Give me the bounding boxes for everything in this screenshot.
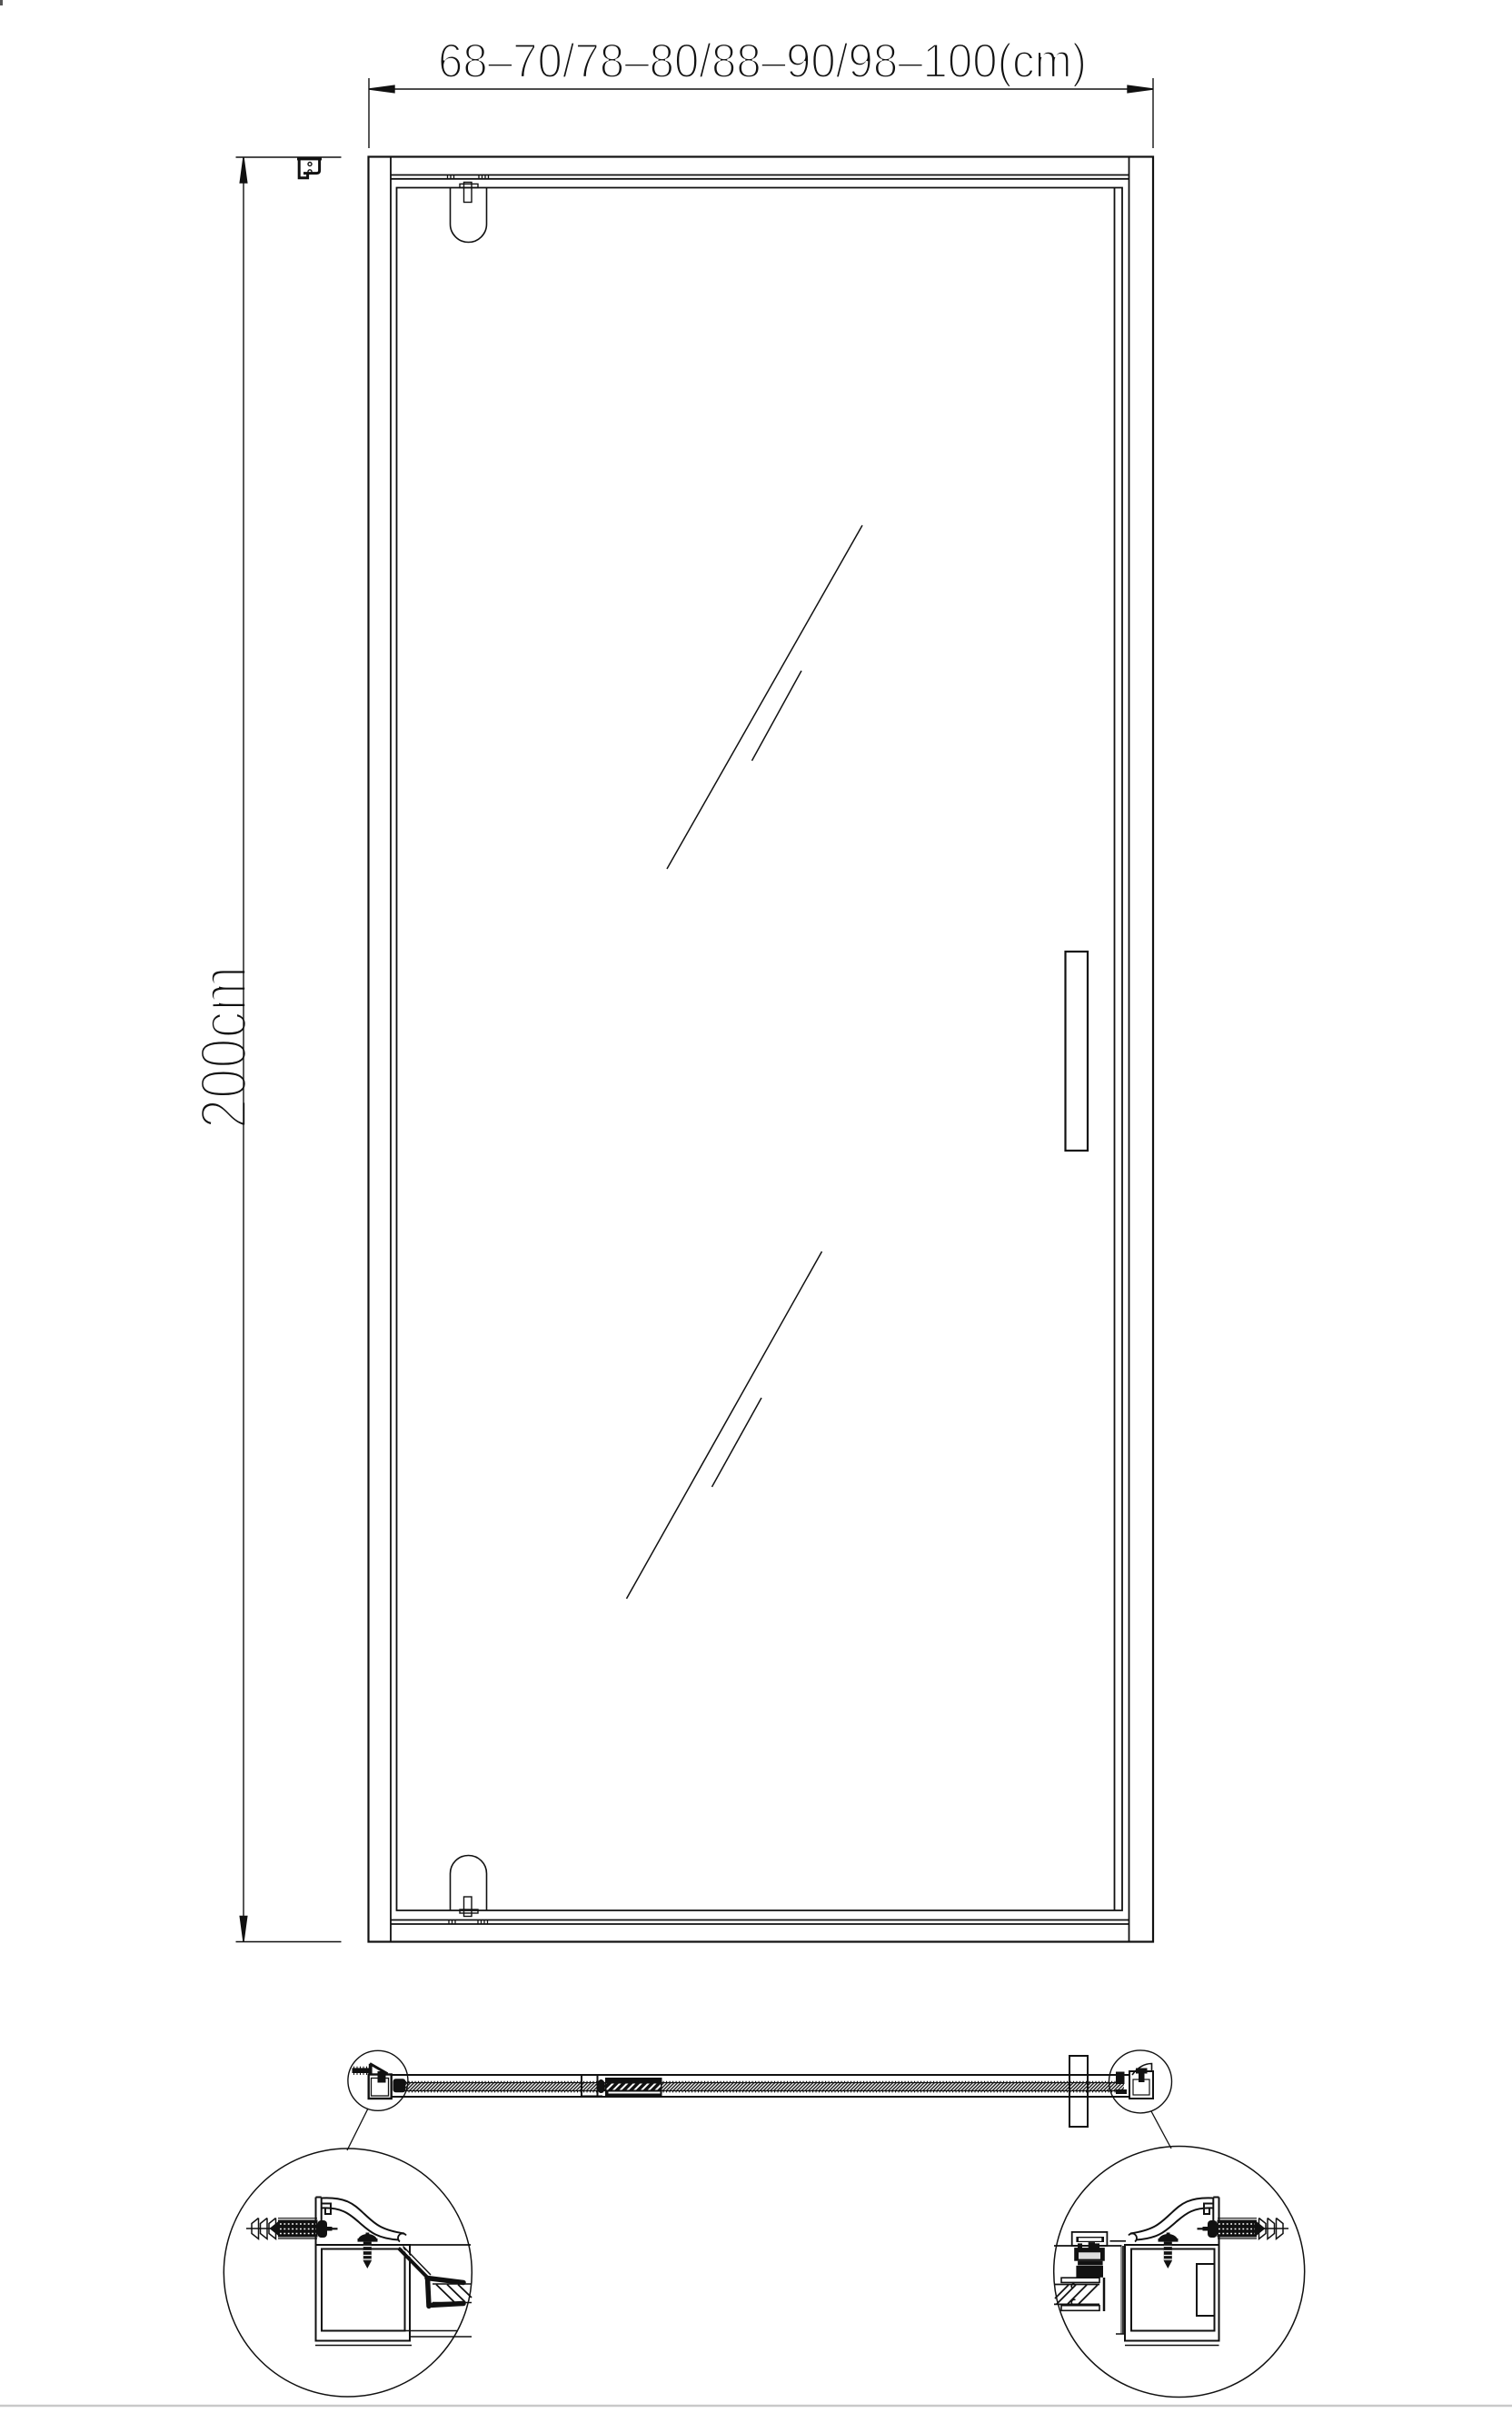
svg-text:68–70/78–80/88–90/98–100(cm): 68–70/78–80/88–90/98–100(cm) bbox=[438, 35, 1087, 88]
svg-text:200cm: 200cm bbox=[188, 966, 261, 1129]
